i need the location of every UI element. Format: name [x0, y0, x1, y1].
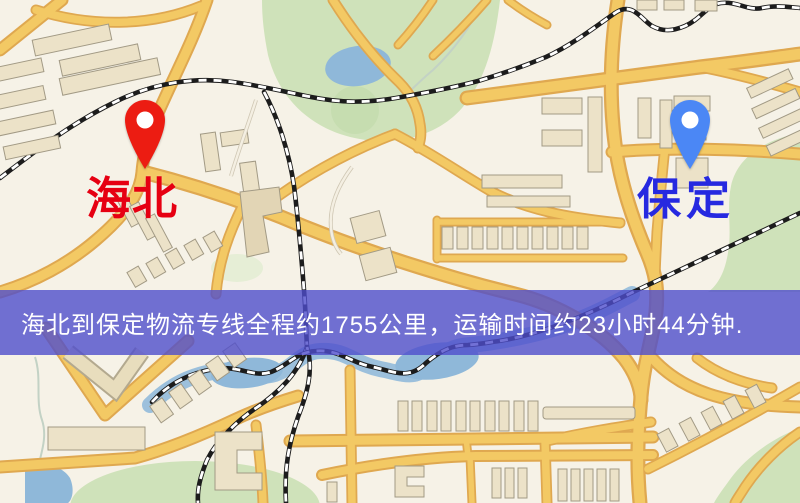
destination-pin-icon[interactable]: [666, 98, 714, 170]
map-image: [0, 0, 800, 503]
map-view: 海北 保定 海北到保定物流专线全程约1755公里，运输时间约23小时44分钟.: [0, 0, 800, 503]
origin-city-label: 海北: [86, 176, 178, 221]
route-info-text: 海北到保定物流专线全程约1755公里，运输时间约23小时44分钟.: [0, 305, 743, 340]
route-info-banner: 海北到保定物流专线全程约1755公里，运输时间约23小时44分钟.: [0, 290, 800, 355]
destination-city-label: 保定: [637, 178, 735, 222]
origin-pin-icon[interactable]: [121, 98, 169, 170]
